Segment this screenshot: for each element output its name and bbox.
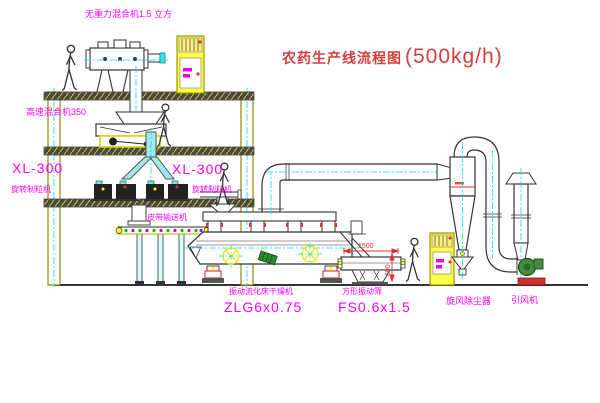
title-chinese: 农药生产线流程图 xyxy=(282,48,402,68)
granulator-left-name: 旋转制粒机 xyxy=(11,186,51,194)
granulator-right-model: XL-300 xyxy=(172,162,223,176)
dryer-model-label: ZLG6x0.75 xyxy=(224,300,302,314)
high-speed-mixer-label: 高速混合机350 xyxy=(26,108,86,117)
granulator-right xyxy=(144,181,190,201)
sieve-model-label: FS0.6x1.5 xyxy=(338,300,411,314)
gravity-mixer-label: 无重力混合机1.5 立方 xyxy=(85,10,172,19)
fan-label: 引风机 xyxy=(511,296,538,305)
control-cabinet-bottom xyxy=(430,233,454,285)
sieve-height-dim: 600 xyxy=(385,264,392,276)
belt-conveyor-label: 皮带输送机 xyxy=(147,214,187,222)
y-chute xyxy=(122,157,174,179)
control-cabinet-top xyxy=(177,36,204,93)
cyclone-label: 旋风除尘器 xyxy=(446,297,491,306)
gravity-mixer xyxy=(84,40,168,92)
induced-draft-fan xyxy=(518,259,545,286)
title-capacity: (500kg/h) xyxy=(405,45,503,69)
cad-flow-diagram: 农药生产线流程图 (500kg/h) 无重力混合机1.5 立方 高速混合机350… xyxy=(0,0,600,403)
drawing-title: 农药生产线流程图 (500kg/h) xyxy=(282,45,503,69)
feed-pipe xyxy=(130,66,142,114)
dryer-foot xyxy=(202,266,224,283)
dryer-name-label: 振动流化床干燥机 xyxy=(229,288,293,296)
dryer-foot xyxy=(320,266,342,283)
fluid-bed-dryer xyxy=(183,212,370,283)
granulator-right-name: 旋转制粒机 xyxy=(192,186,232,194)
person-figure xyxy=(406,238,419,281)
granulator-left xyxy=(92,181,138,201)
sieve-length-dim: 1500 xyxy=(358,243,374,250)
person-figure xyxy=(62,45,76,90)
sieve-name-label: 方形振动筛 xyxy=(342,288,382,296)
dryer-exhaust-duct xyxy=(258,163,437,214)
granulator-left-model: XL-300 xyxy=(12,161,63,175)
